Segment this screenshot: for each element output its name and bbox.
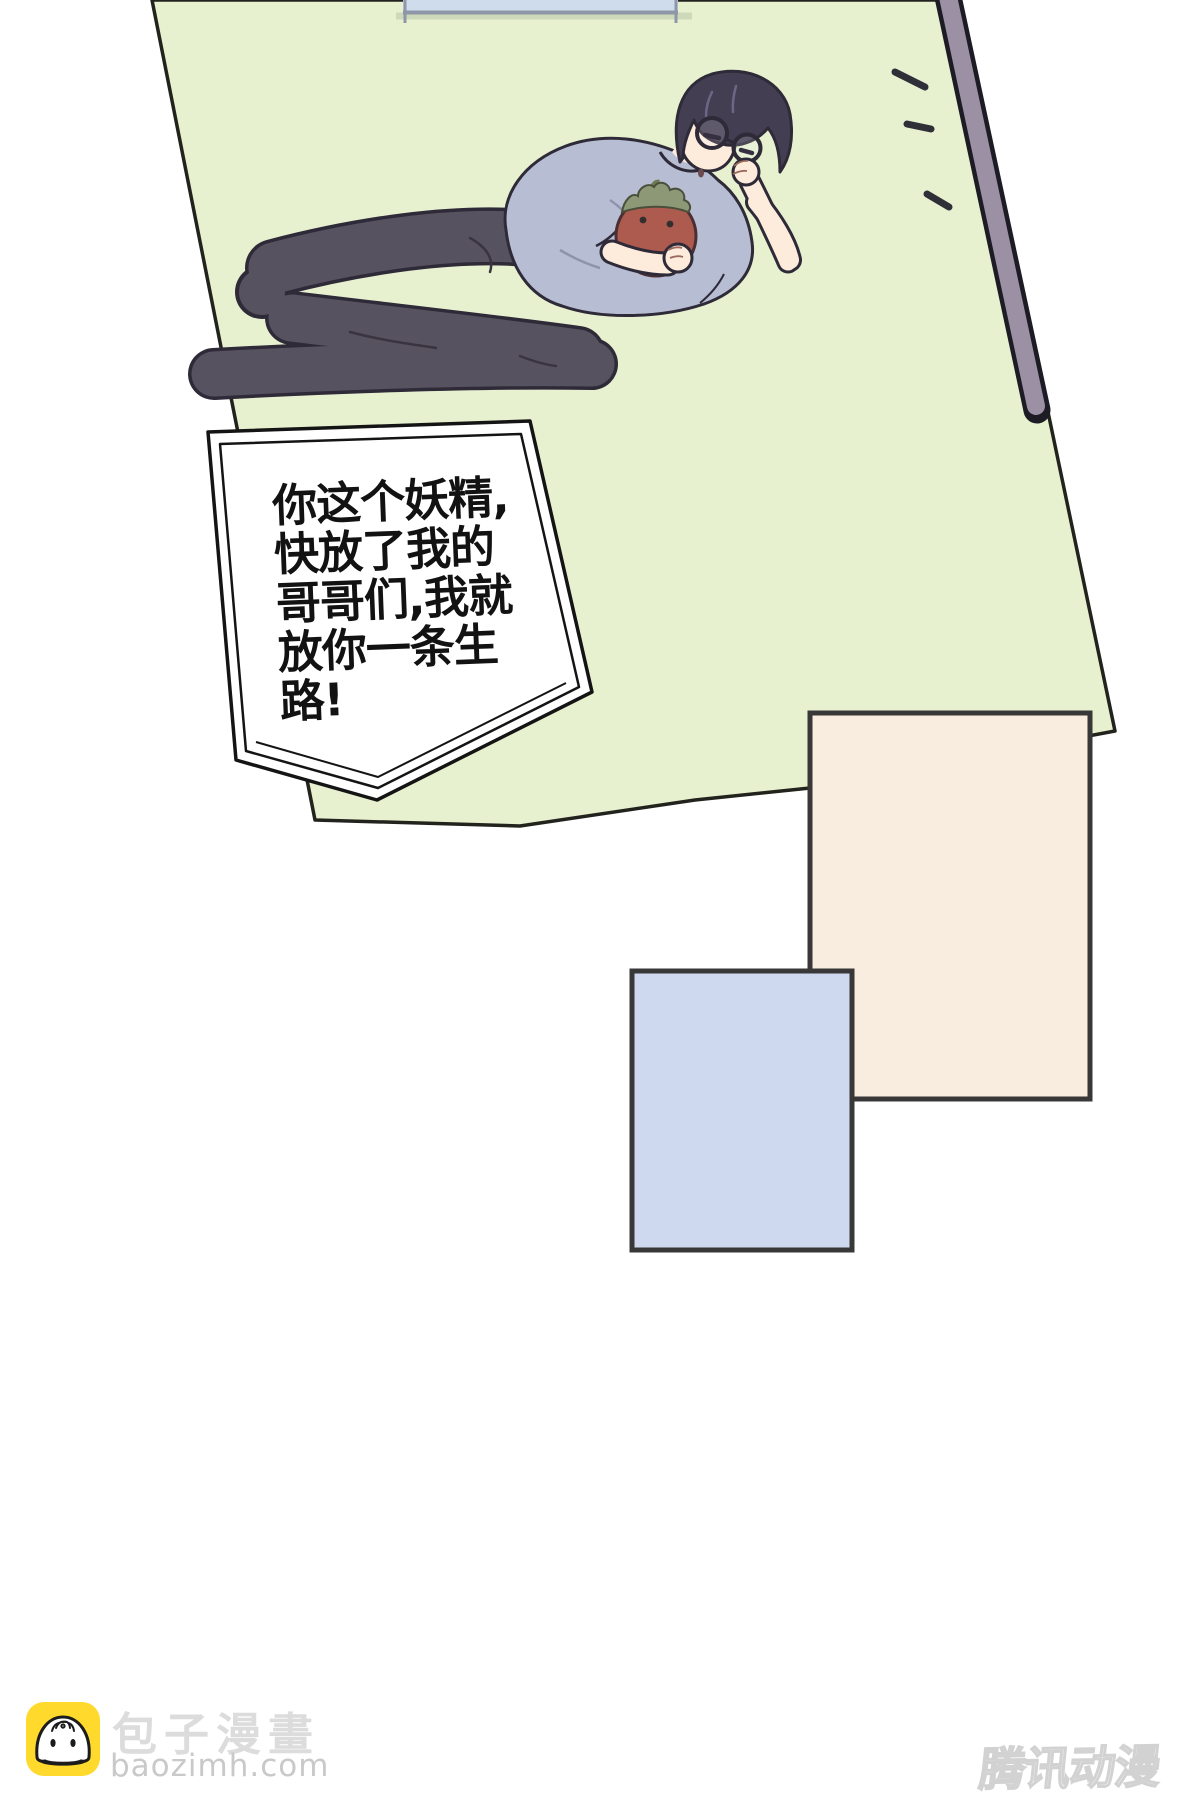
blue-panel: [632, 971, 852, 1250]
site-url: baozimh.com: [110, 1748, 329, 1784]
baozi-bun-icon: [26, 1702, 100, 1776]
bubble-line: 路!: [279, 668, 517, 726]
comic-artwork: [0, 0, 1200, 1810]
tencent-watermark: 腾讯动漫: [946, 1730, 1193, 1800]
comic-page[interactable]: 你这个妖精, 快放了我的 哥哥们,我就 放你一条生 路! 包子漫畫: [0, 0, 1200, 1810]
mouth: [698, 169, 704, 178]
speech-bubble-text: 你这个妖精, 快放了我的 哥哥们,我就 放你一条生 路!: [271, 473, 516, 727]
bubble-line: 放你一条生: [277, 619, 515, 677]
baozi-logo-icon: [26, 1702, 100, 1776]
